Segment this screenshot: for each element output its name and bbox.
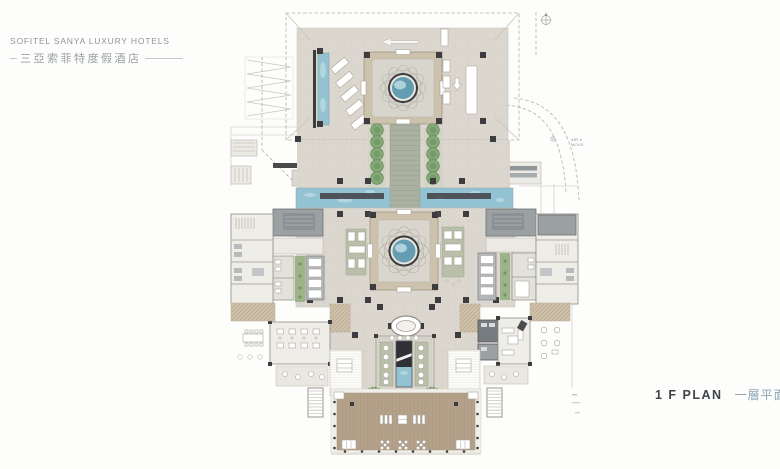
entry-water-strip bbox=[313, 48, 329, 128]
deck-seating-row bbox=[380, 415, 425, 424]
lobby-lounge-left bbox=[346, 229, 366, 275]
entry-steps-left bbox=[231, 140, 257, 184]
lobby-lotus-court bbox=[368, 210, 441, 293]
roof-hatch-right bbox=[530, 303, 570, 321]
plan-title-cn: 一層平面圖 bbox=[735, 386, 780, 403]
elevator-bank-left bbox=[306, 256, 324, 300]
service-rooms-right bbox=[478, 320, 498, 360]
brand-title-en: SOFITEL SANYA LUXURY HOTELS bbox=[10, 36, 183, 46]
header-rule-left bbox=[10, 58, 17, 59]
water-bridge-right bbox=[427, 193, 491, 199]
plan-title-en: 1 F PLAN bbox=[655, 388, 723, 402]
lounge-bar-right bbox=[496, 316, 532, 366]
buffet-bar bbox=[396, 341, 412, 387]
air-note-marker-icon bbox=[551, 137, 555, 141]
outdoor-long-table-left bbox=[238, 330, 263, 359]
private-dining-left bbox=[268, 320, 332, 366]
brand-title-cn-row: 三亞索菲特度假酒店 bbox=[10, 50, 183, 66]
covered-walk-right bbox=[460, 304, 480, 332]
stair-left bbox=[308, 388, 323, 417]
header-rule-right bbox=[145, 58, 183, 59]
water-bridge-left bbox=[320, 193, 384, 199]
terrace-deck bbox=[331, 389, 481, 455]
elevator-bank-right bbox=[478, 253, 496, 300]
wing-right bbox=[536, 214, 578, 304]
reception-counter bbox=[466, 66, 477, 114]
brand-title-cn: 三亞索菲特度假酒店 bbox=[17, 50, 145, 66]
dining-terrace-left bbox=[276, 366, 328, 386]
air-note-annotation: AIR # MOVE bbox=[571, 137, 584, 148]
lobby-lounge-right bbox=[442, 227, 464, 285]
presentation-page: SOFITEL SANYA LUXURY HOTELS 三亞索菲特度假酒店 1 … bbox=[0, 0, 780, 469]
plan-title: 1 F PLAN 一層平面圖 bbox=[655, 386, 780, 403]
core-right bbox=[478, 209, 536, 300]
lobby-pool bbox=[390, 237, 419, 266]
stone-axis-path bbox=[390, 124, 420, 210]
wing-left bbox=[231, 214, 273, 304]
outdoor-tables-right bbox=[541, 327, 560, 359]
stair-right bbox=[487, 388, 502, 417]
scale-ticks bbox=[572, 394, 580, 413]
lounge-terrace-right bbox=[484, 366, 528, 384]
entry-lotus-pavilion bbox=[361, 50, 445, 125]
header: SOFITEL SANYA LUXURY HOTELS 三亞索菲特度假酒店 bbox=[10, 36, 183, 66]
restaurant-hall bbox=[374, 334, 436, 394]
air-note-line2: MOVE bbox=[571, 142, 584, 147]
deck-shadow bbox=[331, 453, 481, 455]
roof-hatch-left bbox=[231, 303, 275, 321]
covered-walk-left bbox=[330, 304, 350, 332]
lobby bbox=[231, 208, 578, 307]
deck-daybed-left bbox=[342, 440, 356, 449]
entrance-pavilion bbox=[286, 13, 519, 140]
north-arrow-icon bbox=[541, 13, 552, 26]
deck-daybed-right bbox=[456, 440, 470, 449]
entry-pool bbox=[389, 74, 417, 102]
